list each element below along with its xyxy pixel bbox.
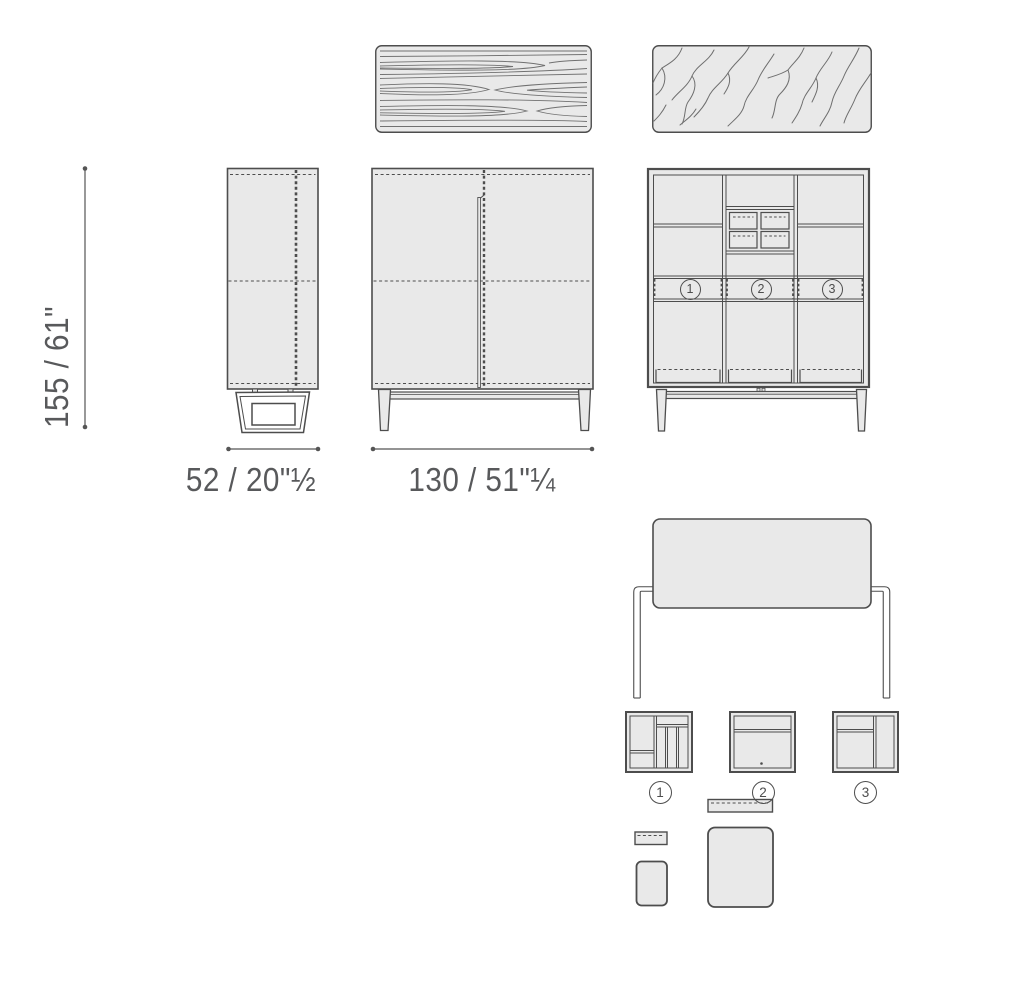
drawer-insert-1	[626, 712, 692, 772]
accessory-small-mat	[635, 832, 667, 845]
insert-2-badge: 2	[752, 781, 775, 804]
wood-sample-veins	[653, 46, 872, 133]
side-width-dimension-line	[226, 447, 320, 452]
cabinet-side-view	[228, 169, 319, 433]
cabinet-top-section-view	[634, 519, 890, 698]
front-base-frame	[379, 390, 591, 431]
interior-base-frame	[657, 388, 867, 431]
furniture-dimension-diagram	[0, 0, 1024, 1000]
insert-1-badge: 1	[649, 781, 672, 804]
cabinet-front-view	[372, 169, 593, 431]
front-width-dimension-label: 130 / 51"¼	[392, 461, 572, 499]
accessory-small-tray	[637, 862, 668, 906]
interior-drawer-2-badge: 2	[751, 279, 772, 300]
interior-drawer-1-badge: 1	[680, 279, 701, 300]
interior-drawer-3-badge: 3	[822, 279, 843, 300]
side-base-frame	[236, 389, 310, 433]
height-dimension-line	[83, 166, 88, 429]
technical-drawing-page: 155 / 61" 52 / 20"½ 130 / 51"¼ 1 2 3 1 2…	[0, 0, 1024, 1000]
side-width-dimension-label: 52 / 20"½	[161, 461, 341, 499]
accessory-large-tray	[708, 828, 773, 908]
drawer-insert-3	[833, 712, 898, 772]
height-dimension-label: 155 / 61"	[38, 277, 76, 457]
front-width-dimension-line	[371, 447, 595, 452]
wood-sample-grain	[376, 46, 592, 133]
drawer-insert-2	[730, 712, 795, 772]
cabinet-interior-view	[648, 169, 869, 431]
insert-3-badge: 3	[854, 781, 877, 804]
